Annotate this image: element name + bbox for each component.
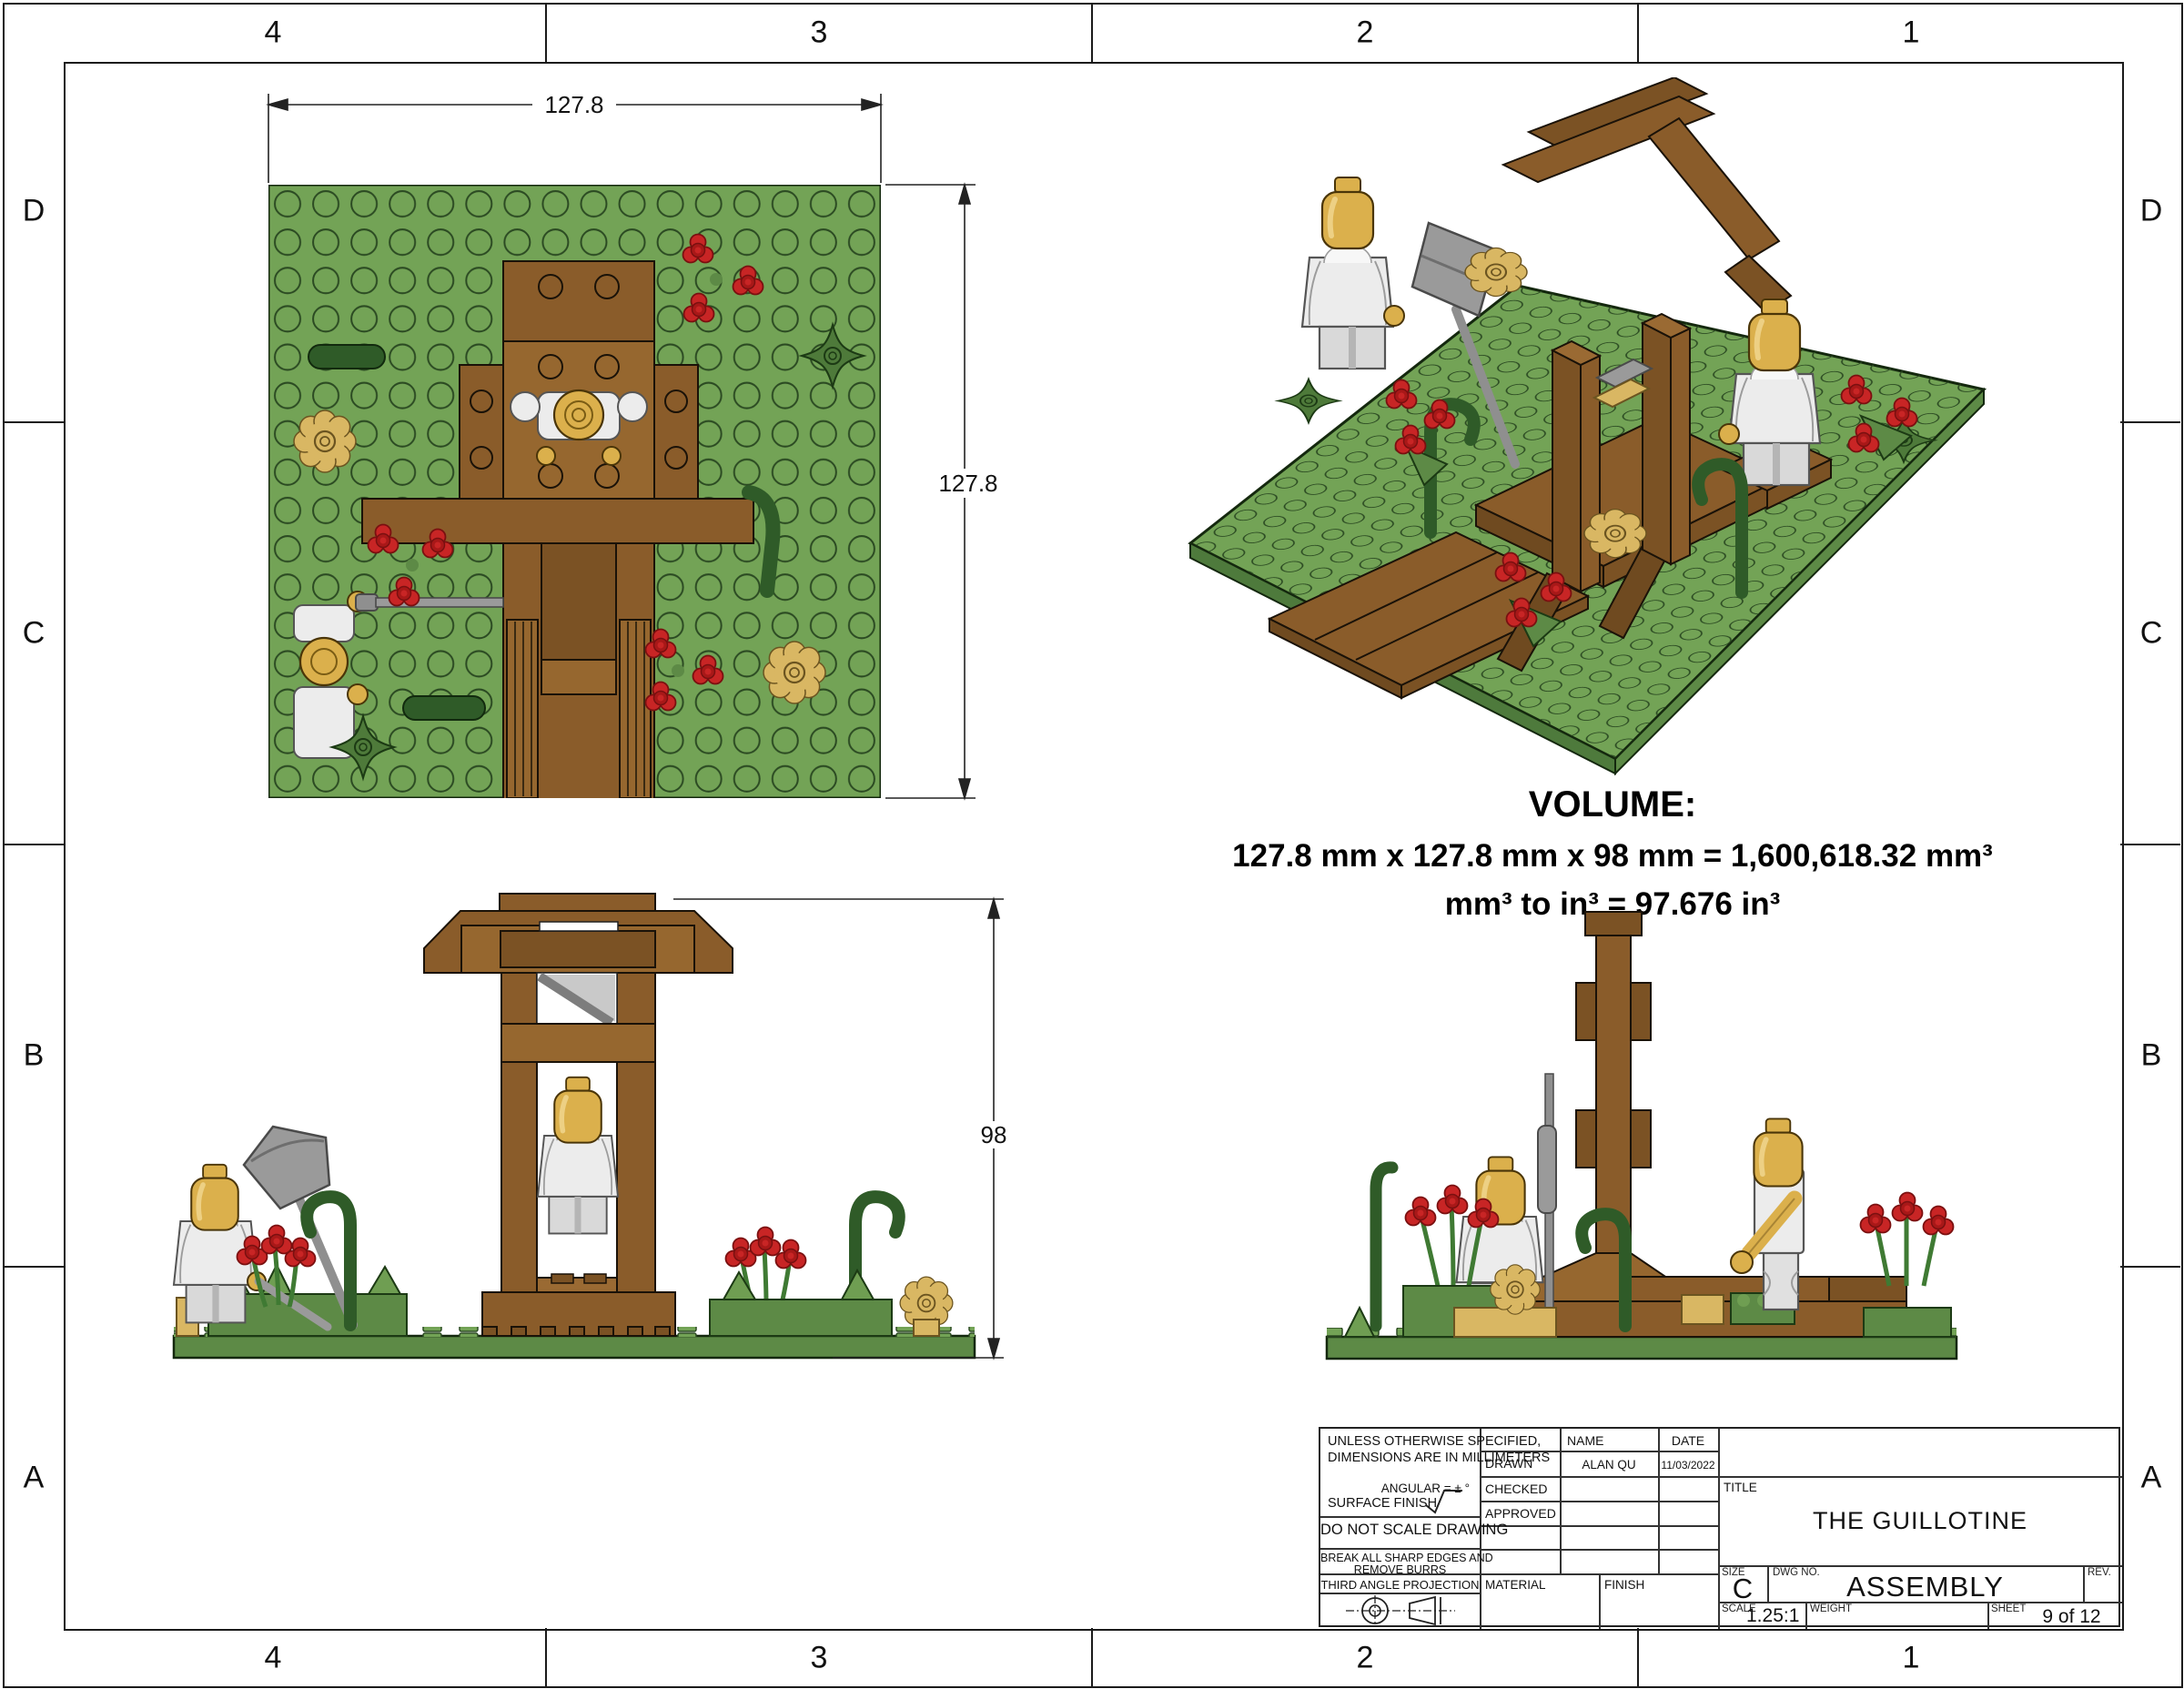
zone-label-bottom: 1 bbox=[1903, 1641, 1920, 1676]
sheet-value: 9 of 12 bbox=[2021, 1606, 2122, 1628]
zone-label-left: C bbox=[23, 616, 45, 652]
name-column-header: NAME bbox=[1567, 1433, 1603, 1448]
title-label: TITLE bbox=[1724, 1481, 1757, 1494]
projection-note: THIRD ANGLE PROJECTION bbox=[1320, 1578, 1480, 1592]
zone-label-left: A bbox=[24, 1461, 45, 1496]
scale-value: 1.25:1 bbox=[1746, 1605, 1799, 1627]
zone-label-top: 1 bbox=[1903, 15, 1920, 51]
date-column-header: DATE bbox=[1658, 1433, 1718, 1448]
dimension-label-front-height: 98 bbox=[957, 1121, 1030, 1148]
zone-tick bbox=[2120, 421, 2180, 423]
zone-tick bbox=[4, 421, 64, 423]
dimension-label-height: 127.8 bbox=[926, 469, 1010, 498]
engineering-drawing-sheet: { "frame": { "cols": ["4", "3", "2", "1"… bbox=[0, 0, 2184, 1689]
zone-label-right: C bbox=[2140, 616, 2163, 652]
break-edges-note-line2: REMOVE BURRS bbox=[1320, 1563, 1480, 1576]
zone-tick bbox=[2120, 1266, 2180, 1268]
zone-tick bbox=[2120, 844, 2180, 845]
weight-label: WEIGHT bbox=[1810, 1603, 1852, 1614]
zone-label-right: A bbox=[2141, 1461, 2162, 1496]
zone-tick bbox=[1091, 1628, 1093, 1686]
isometric-view-illustration bbox=[1183, 77, 2002, 787]
zone-label-bottom: 2 bbox=[1357, 1641, 1374, 1676]
tolerance-note-line1: UNLESS OTHERWISE SPECIFIED, bbox=[1328, 1434, 1541, 1449]
dimension-label-width: 127.8 bbox=[532, 91, 616, 118]
zone-label-right: D bbox=[2140, 194, 2163, 229]
rev-label: REV. bbox=[2088, 1567, 2111, 1578]
zone-label-left: B bbox=[24, 1038, 45, 1074]
material-label: MATERIAL bbox=[1485, 1578, 1546, 1592]
zone-label-bottom: 4 bbox=[265, 1641, 282, 1676]
zone-tick bbox=[1637, 1628, 1639, 1686]
zone-label-right: B bbox=[2141, 1038, 2162, 1074]
dwg-no-value: ASSEMBLY bbox=[1767, 1571, 2083, 1603]
zone-label-top: 4 bbox=[265, 15, 282, 51]
drawn-row-label: DRAWN bbox=[1485, 1456, 1532, 1471]
zone-tick bbox=[1091, 4, 1093, 62]
top-view-illustration bbox=[268, 185, 881, 798]
surface-finish-icon bbox=[1424, 1489, 1466, 1516]
zone-label-top: 2 bbox=[1357, 15, 1374, 51]
zone-tick bbox=[1637, 4, 1639, 62]
zone-tick bbox=[545, 4, 547, 62]
zone-label-left: D bbox=[23, 194, 45, 229]
side-view-illustration bbox=[1319, 896, 1975, 1374]
approved-row-label: APPROVED bbox=[1485, 1506, 1556, 1521]
zone-label-top: 3 bbox=[811, 15, 828, 51]
zone-tick bbox=[4, 1266, 64, 1268]
size-value: C bbox=[1718, 1573, 1767, 1605]
victim-front bbox=[538, 1077, 618, 1283]
drawn-name-value: ALAN QU bbox=[1560, 1458, 1658, 1472]
title-block: UNLESS OTHERWISE SPECIFIED, DIMENSIONS A… bbox=[1319, 1427, 2120, 1627]
finish-label: FINISH bbox=[1604, 1578, 1644, 1592]
drawing-title: THE GUILLOTINE bbox=[1718, 1507, 2122, 1535]
volume-heading: VOLUME: bbox=[1194, 784, 2031, 825]
volume-line-1: 127.8 mm x 127.8 mm x 98 mm = 1,600,618.… bbox=[1194, 838, 2031, 875]
drawn-date-value: 11/03/2022 bbox=[1658, 1459, 1718, 1472]
do-not-scale-note: DO NOT SCALE DRAWING bbox=[1320, 1522, 1480, 1539]
surface-finish-label: SURFACE FINISH bbox=[1328, 1496, 1437, 1511]
break-edges-note-line1: BREAK ALL SHARP EDGES AND bbox=[1320, 1552, 1480, 1564]
checked-row-label: CHECKED bbox=[1485, 1482, 1547, 1496]
zone-tick bbox=[4, 844, 64, 845]
zone-tick bbox=[545, 1628, 547, 1686]
zone-label-bottom: 3 bbox=[811, 1641, 828, 1676]
third-angle-projection-icon bbox=[1346, 1595, 1455, 1626]
